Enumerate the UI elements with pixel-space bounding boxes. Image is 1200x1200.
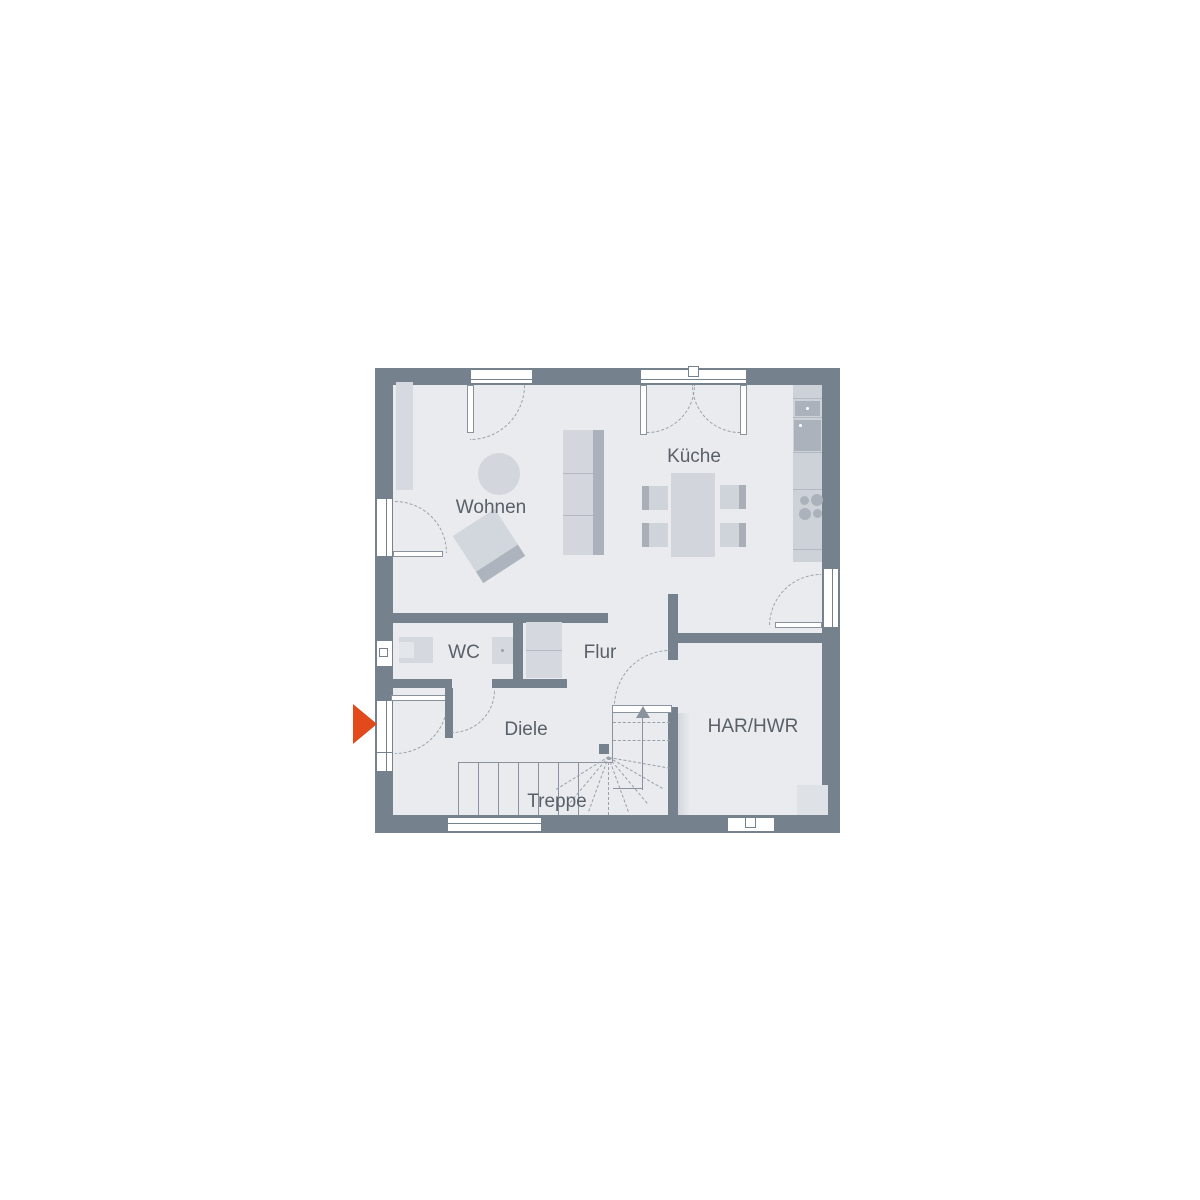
toilet — [399, 637, 433, 663]
room-label-har-hwr: HAR/HWR — [708, 716, 799, 738]
stair-winder-line — [608, 757, 609, 815]
entrance-door-opening — [376, 700, 393, 772]
window-har-symbol — [745, 817, 756, 828]
window-top-left — [470, 369, 533, 384]
wardrobe-divider — [526, 650, 562, 651]
shelf-cabinet — [563, 430, 604, 555]
microwave — [795, 401, 820, 416]
counter-divider — [793, 398, 822, 399]
window-bottom-left — [447, 817, 542, 832]
stair-edge-left — [458, 762, 459, 815]
cooktop-burner — [811, 494, 823, 506]
room-label-treppe: Treppe — [527, 791, 587, 813]
french-door-symbol — [688, 366, 699, 377]
interior-wall-har-top — [678, 633, 822, 643]
room-label-wc: WC — [448, 642, 480, 664]
counter-divider — [793, 417, 822, 418]
oven — [794, 420, 821, 451]
shelf-divider — [563, 515, 593, 516]
window-frame-line — [470, 379, 533, 380]
toilet-cistern — [399, 642, 414, 658]
stair-tread-line — [518, 762, 519, 815]
dining-table — [671, 473, 715, 557]
interior-wall-wc-bottom-left — [393, 679, 452, 688]
wardrobe-flur — [526, 622, 562, 678]
har-appliance — [797, 785, 828, 815]
stair-upper-edge — [612, 713, 613, 762]
outer-wall-top — [375, 368, 840, 385]
french-door-leaf-right — [740, 385, 747, 435]
room-label-flur: Flur — [584, 642, 617, 664]
terrace-door-living — [376, 498, 393, 557]
stair-walk-line — [613, 788, 643, 789]
entrance-arrow — [353, 704, 377, 744]
window-frame-line — [447, 823, 542, 824]
stair-tread-line — [498, 762, 499, 815]
interior-wall-flur-bottom — [492, 679, 567, 688]
stair-walk-line — [642, 716, 643, 790]
room-label-diele: Diele — [504, 719, 547, 741]
washbasin — [492, 637, 513, 664]
wall-shadow — [678, 713, 690, 815]
round-table — [478, 453, 520, 495]
appliance-dot — [799, 424, 802, 427]
stair-direction-arrowhead — [636, 706, 650, 718]
interior-wall-har-left — [668, 707, 678, 815]
window-frame-line — [386, 498, 387, 557]
shelf-cabinet-back — [593, 430, 604, 555]
terrace-door-kitchen — [823, 568, 839, 628]
shelf-divider — [563, 473, 593, 474]
interior-wall-wc-top — [393, 613, 608, 623]
stair-edge-top — [458, 762, 613, 763]
french-door-leaf-left — [640, 385, 647, 435]
window-frame-line — [832, 568, 833, 628]
counter-divider — [793, 549, 822, 550]
stair-newel-post — [599, 744, 609, 754]
chair — [720, 485, 746, 509]
room-label-kueche: Küche — [667, 446, 721, 468]
cooktop-burner — [800, 496, 809, 505]
basin-drain — [501, 649, 504, 652]
window-frame-line — [640, 379, 747, 380]
chair — [720, 523, 746, 547]
counter-divider — [793, 489, 822, 490]
window-frame-line — [376, 752, 393, 753]
stair-tread-line — [478, 762, 479, 815]
appliance-dot — [806, 407, 809, 410]
counter-divider — [793, 452, 822, 453]
room-label-wohnen: Wohnen — [456, 497, 526, 519]
window-wc-symbol — [379, 648, 388, 657]
window-frame-line — [386, 700, 387, 772]
chair — [642, 486, 668, 510]
sideboard — [396, 382, 413, 490]
cooktop-burner — [813, 509, 822, 518]
floor-plan-canvas: Wohnen Küche WC Flur Diele Treppe HAR/HW… — [0, 0, 1200, 1200]
chair — [642, 523, 668, 547]
cooktop-burner — [799, 508, 811, 520]
